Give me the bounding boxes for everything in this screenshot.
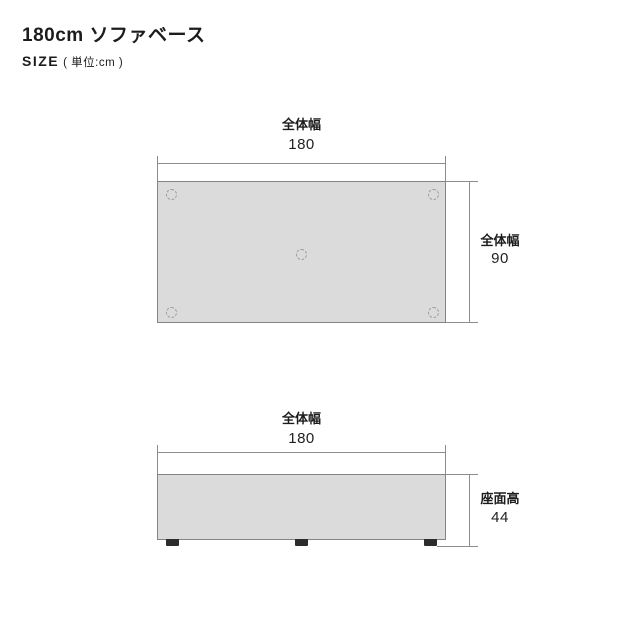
top-view-depth-tick-bottom <box>446 322 478 323</box>
size-heading: SIZE( 単位:cm ) <box>22 53 123 71</box>
top-view-depth-value: 90 <box>466 251 534 266</box>
top-view-depth-tick-top <box>446 181 478 182</box>
top-view-width-dimension-line <box>157 163 446 164</box>
sofa-foot-center <box>295 539 308 546</box>
leg-marker-circle-top-left <box>166 189 177 200</box>
top-view-width-tick-left <box>157 156 158 181</box>
page-title: 180cm ソファベース <box>22 20 206 47</box>
side-view-width-dimension-line <box>157 452 446 453</box>
seat-height-value: 44 <box>466 510 534 525</box>
leg-marker-circle-top-right <box>428 189 439 200</box>
side-view-width-tick-left <box>157 445 158 474</box>
side-view-width-value: 180 <box>157 431 446 446</box>
leg-marker-circle-center <box>296 249 307 260</box>
top-view-width-value: 180 <box>157 137 446 152</box>
top-view-depth-label: 全体幅 <box>466 234 534 247</box>
seat-height-tick-bottom <box>437 546 478 547</box>
side-view-width-label: 全体幅 <box>157 412 446 425</box>
seat-height-tick-top <box>446 474 478 475</box>
top-view-width-label: 全体幅 <box>157 118 446 131</box>
unit-note: ( 単位:cm ) <box>63 57 123 69</box>
top-view-width-tick-right <box>445 156 446 181</box>
leg-marker-circle-bottom-left <box>166 307 177 318</box>
side-view-body <box>157 474 446 540</box>
leg-marker-circle-bottom-right <box>428 307 439 318</box>
sofa-foot-left <box>166 539 179 546</box>
size-diagram-page: 180cm ソファベース SIZE( 単位:cm ) 全体幅 180 全体幅 9… <box>0 0 621 621</box>
side-view-width-tick-right <box>445 445 446 474</box>
seat-height-label: 座面高 <box>466 492 534 505</box>
size-label: SIZE <box>22 53 59 69</box>
sofa-foot-right <box>424 539 437 546</box>
